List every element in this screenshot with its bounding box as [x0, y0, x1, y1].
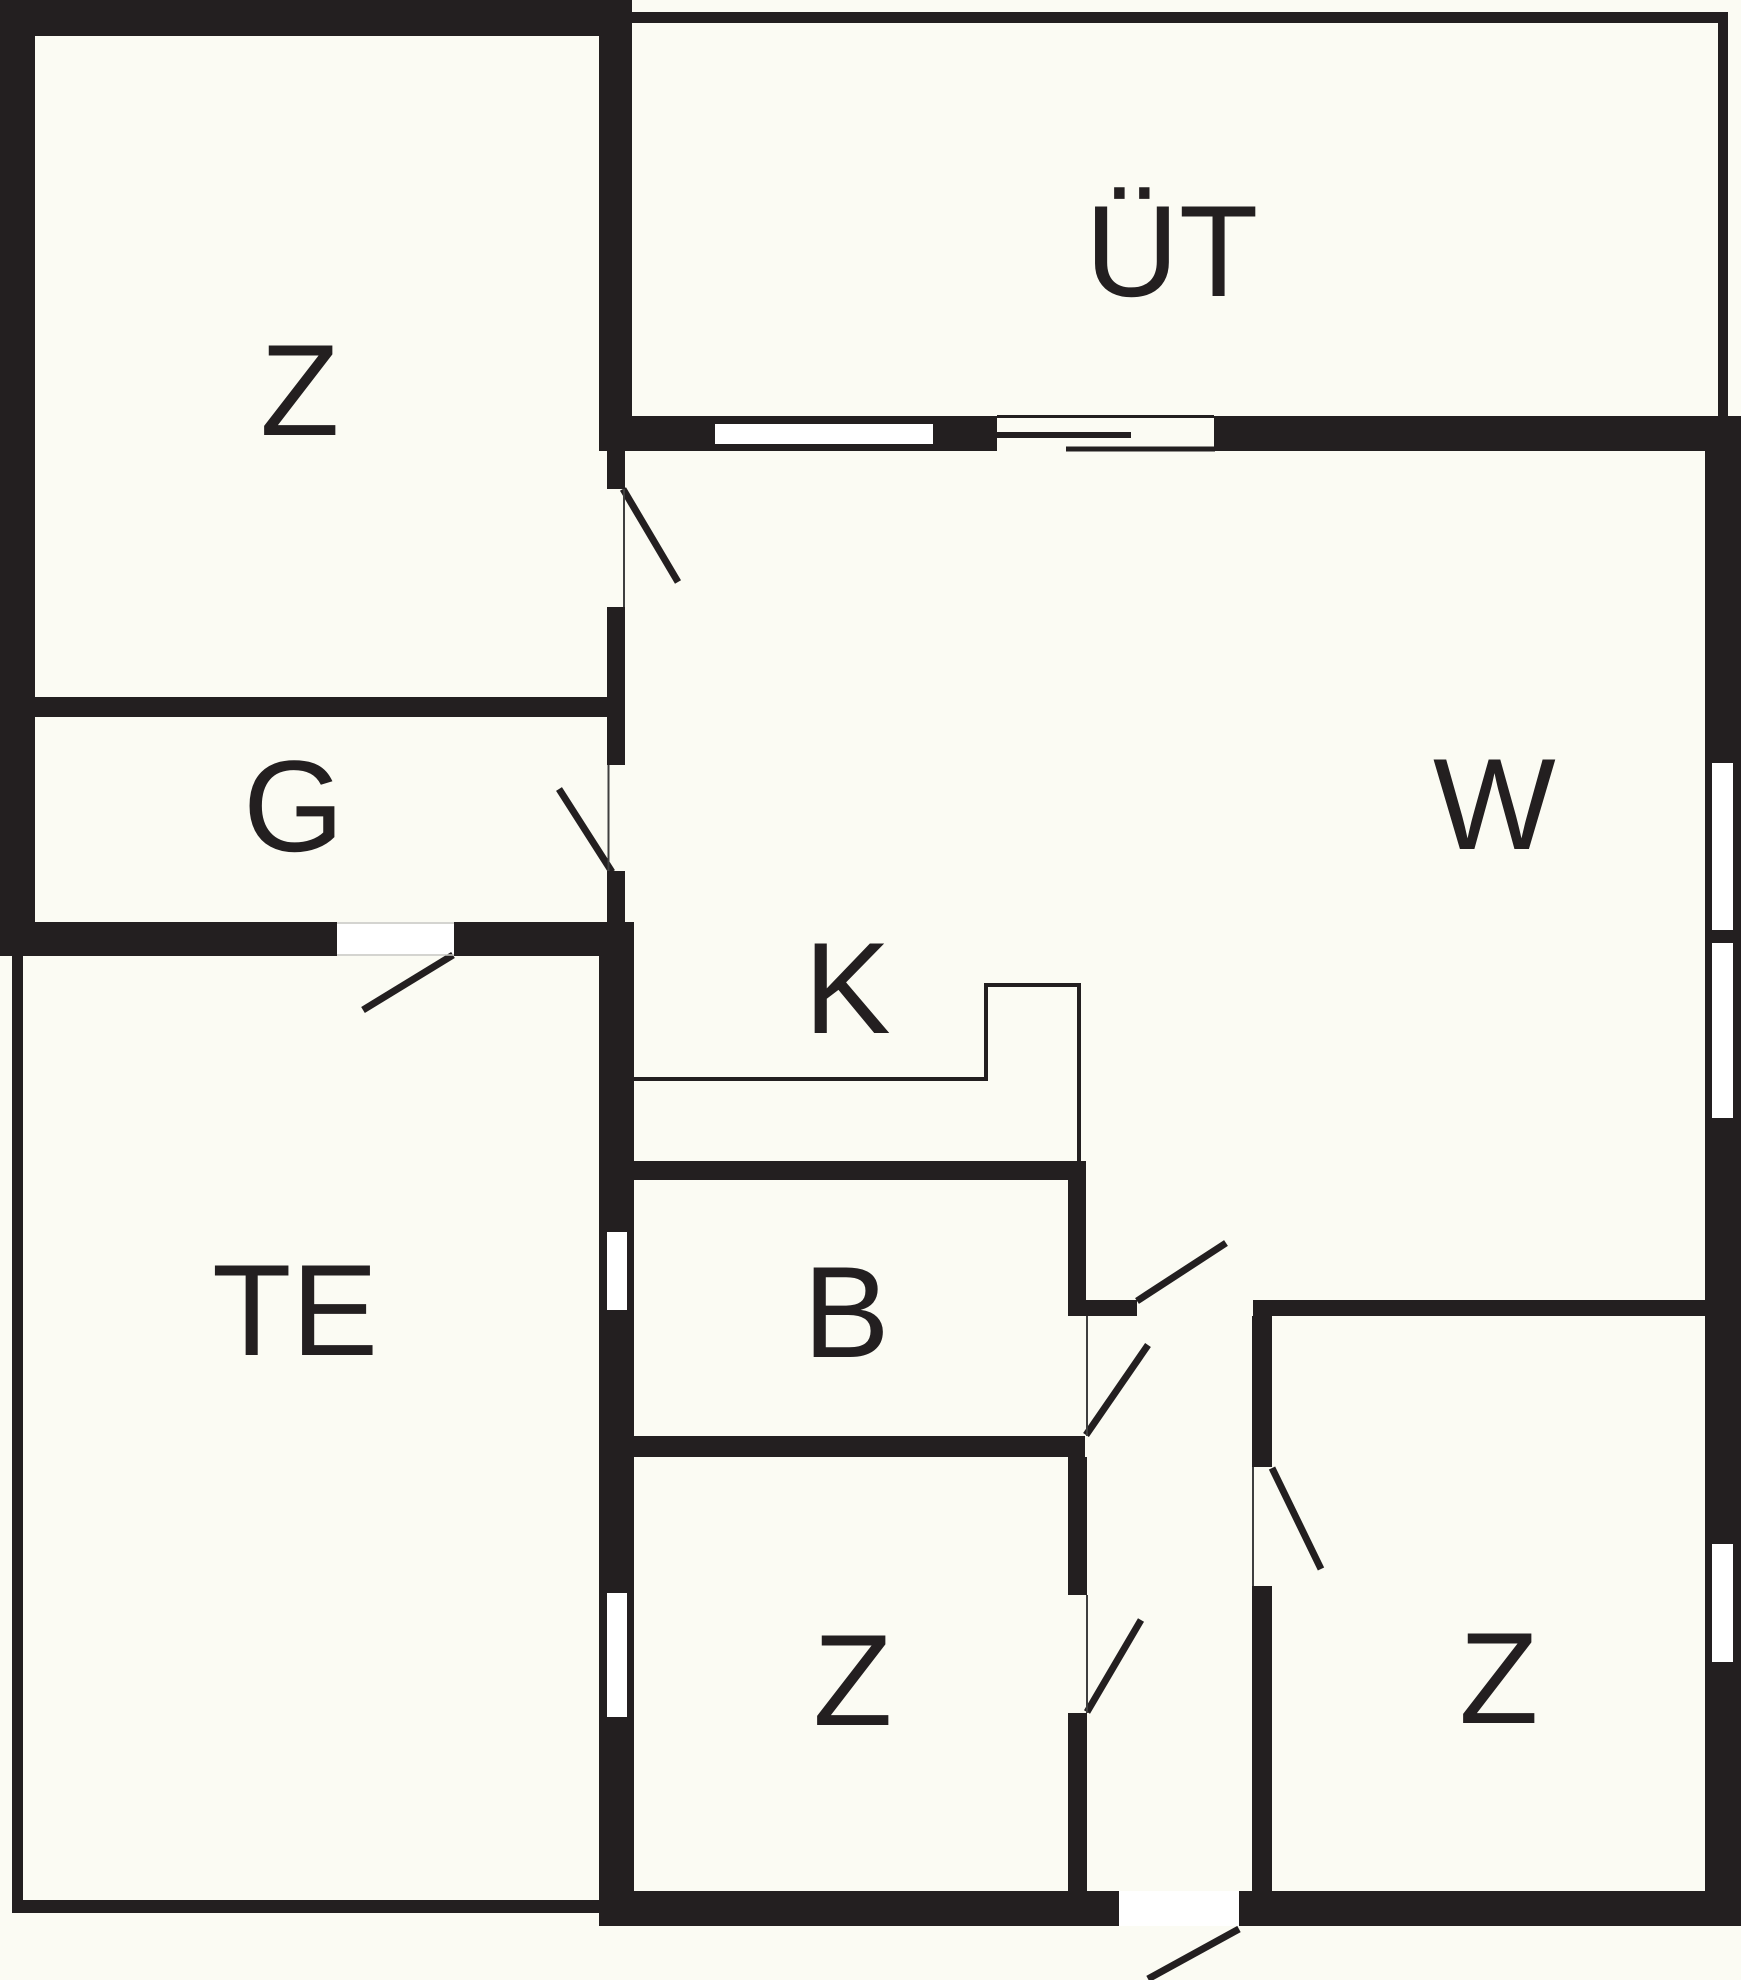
svg-text:Z: Z — [1459, 1605, 1538, 1751]
svg-text:W: W — [1433, 731, 1556, 877]
svg-text:B: B — [803, 1239, 890, 1385]
svg-text:Z: Z — [260, 317, 339, 463]
svg-text:K: K — [804, 915, 891, 1061]
svg-text:Z: Z — [813, 1607, 892, 1753]
svg-text:TE: TE — [212, 1237, 378, 1383]
svg-text:ÜT: ÜT — [1085, 178, 1258, 324]
svg-text:G: G — [243, 733, 344, 879]
